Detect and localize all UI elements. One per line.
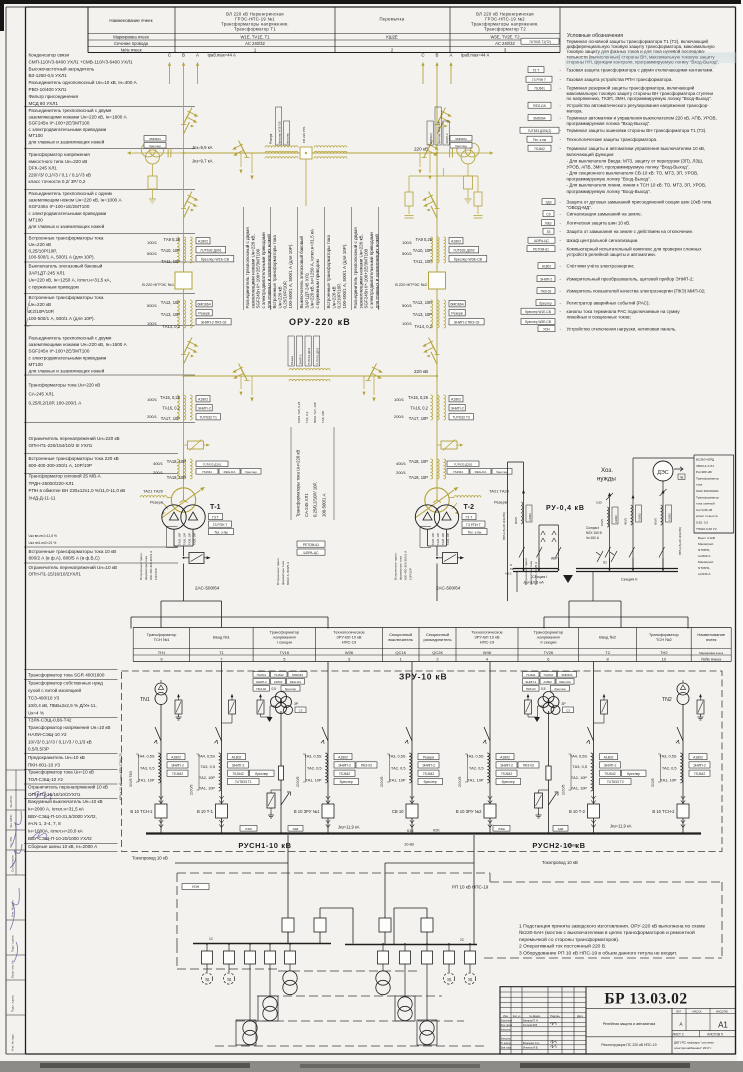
svg-text:Резерв: Резерв <box>494 500 507 505</box>
svg-text:TN2: TN2 <box>662 697 672 703</box>
svg-text:Тех. з-пы: Тех. з-пы <box>533 138 547 142</box>
svg-text:6MD664: 6MD664 <box>533 116 545 120</box>
svg-text:Конденсатор связи: Конденсатор связи <box>29 53 70 58</box>
svg-text:МТ100: МТ100 <box>29 217 44 222</box>
svg-text:устройств релейной защиты и ав: устройств релейной защиты и автоматики. <box>567 251 656 257</box>
svg-text:ТА10, 10Р: ТА10, 10Р <box>161 248 180 253</box>
svg-text:ЗД: ЗД <box>205 978 210 982</box>
svg-text:УРОВ, АПВ, ЗМН, программируему: УРОВ, АПВ, ЗМН, программируемую логику "… <box>567 164 690 169</box>
svg-text:№№ ячеек: №№ ячеек <box>120 48 141 53</box>
svg-text:800/2 А (в ф.А), 800/5 А (в ф.: 800/2 А (в ф.А), 800/5 А (в ф.В,С) <box>29 556 101 561</box>
svg-text:А1802: А1802 <box>338 755 348 759</box>
svg-text:бреслер W1Е-СВ: бреслер W1Е-СВ <box>278 121 282 144</box>
svg-text:В 220 НГРЭС №2: В 220 НГРЭС №2 <box>395 282 427 287</box>
svg-text:ЭНИП-2: ЭНИП-2 <box>198 406 211 410</box>
svg-text:SGF245n II*-100+2Е/3МТ100: SGF245n II*-100+2Е/3МТ100 <box>29 349 90 354</box>
svg-text:ЭНИП-2: ЭНИП-2 <box>445 133 449 144</box>
svg-text:SGF245n II*-100+1Е/2МТ100: SGF245n II*-100+1Е/2МТ100 <box>29 204 90 209</box>
svg-text:Uн=220 кВ, Iн=1250 А, Iоткл.н=: Uн=220 кВ, Iн=1250 А, Iоткл.н=31,5 кА, <box>29 278 111 283</box>
svg-text:заземляющими ножами Uн=220 к: заземляющими ножами Uн=220 кВ, Iн=1600 А <box>29 342 128 347</box>
svg-text:В 220 НГРЭС №1: В 220 НГРЭС №1 <box>142 282 174 287</box>
svg-text:Защита от замыкания на земле с: Защита от замыкания на земле с действием… <box>567 228 694 234</box>
svg-text:ТА12, 10Р: ТА12, 10Р <box>161 300 180 305</box>
svg-text:Релейная защита и автоматика: Релейная защита и автоматика <box>603 1022 656 1026</box>
svg-text:Маркировка ячеек: Маркировка ячеек <box>113 35 149 40</box>
svg-text:2000/5: 2000/5 <box>380 777 384 787</box>
svg-text:Сечение провода: Сечение провода <box>114 41 149 46</box>
svg-text:ГЗ Т: ГЗ Т <box>466 515 473 519</box>
svg-text:Трансформатор Т1: Трансформатор Т1 <box>234 27 276 32</box>
svg-text:ТА18, 10Р: ТА18, 10Р <box>409 459 428 464</box>
svg-text:ТА3, 0,5: ТА3, 0,5 <box>140 766 155 771</box>
svg-text:6MD664: 6MD664 <box>562 673 573 677</box>
svg-text:А1802: А1802 <box>614 515 618 523</box>
svg-text:7SJ642: 7SJ642 <box>501 772 513 776</box>
svg-text:программируемую логику "Вход-В: программируемую логику "Вход-Выход". <box>567 189 651 194</box>
svg-text:яч.N 1, 3-4, 7, 8: яч.N 1, 3-4, 7, 8 <box>28 821 61 826</box>
svg-text:ТА14, 0,2: ТА14, 0,2 <box>414 324 432 329</box>
svg-text:Uн=220 кВ: Uн=220 кВ <box>277 286 282 308</box>
svg-text:емкостного типа Uн=220 кВ: емкостного типа Uн=220 кВ <box>29 159 88 164</box>
svg-text:ТА1, 10Р: ТА1, 10Р <box>389 778 405 783</box>
svg-text:Секция II: Секция II <box>621 577 637 582</box>
svg-text:1С: 1С <box>209 937 214 941</box>
svg-text:ТА2, 10Р: ТА2, 10Р <box>199 775 215 780</box>
svg-text:СЗ: СЗ <box>546 212 550 216</box>
svg-text:А1802: А1802 <box>451 397 461 401</box>
svg-text:ТА21 ТА20: ТА21 ТА20 <box>143 489 164 494</box>
svg-text:Т-2: Т-2 <box>464 504 475 511</box>
svg-text:ЭНИП-2: ЭНИП-2 <box>451 406 464 410</box>
svg-text:220 кВ: 220 кВ <box>414 369 428 374</box>
svg-text:7UT633 Т1: 7UT633 Т1 <box>199 415 217 419</box>
svg-text:форматоры тока: форматоры тока <box>399 556 403 580</box>
svg-text:Т-1: Т-1 <box>210 504 221 511</box>
svg-text:А1802: А1802 <box>542 264 551 268</box>
svg-text:Базаров П.Н.: Базаров П.Н. <box>523 1019 539 1022</box>
svg-text:ОПН-П1-220/154/10/2 III УХЛ1: ОПН-П1-220/154/10/2 III УХЛ1 <box>29 443 93 448</box>
svg-text:бреслер W3Е-СВ: бреслер W3Е-СВ <box>437 121 441 144</box>
svg-text:Вакуумный выключатель Uн=10 кВ: Вакуумный выключатель Uн=10 кВ <box>28 798 103 804</box>
svg-text:Защита от дуговых замыканий пр: Защита от дуговых замыканий присоединени… <box>567 199 712 205</box>
svg-text:400/1: 400/1 <box>153 461 164 466</box>
svg-text:Резерв: Резерв <box>198 311 210 315</box>
svg-text:Выключатель элегазовый баковый: Выключатель элегазовый баковый <box>29 263 103 269</box>
svg-text:300/5 75/5: 300/5 75/5 <box>129 771 133 787</box>
svg-text:ЛЗШ: ЛЗШ <box>545 221 552 225</box>
svg-text:класс точности: класс точности <box>696 514 718 518</box>
svg-text:РЕТОМ-61: РЕТОМ-61 <box>303 543 320 547</box>
svg-text:7UT633 Д301: 7UT633 Д301 <box>203 462 222 466</box>
svg-text:7SJ642: 7SJ642 <box>274 673 284 677</box>
svg-text:Трансформаторы тока Uн=220 кВ: Трансформаторы тока Uн=220 кВ <box>296 450 301 517</box>
svg-text:бреслер: бреслер <box>340 780 353 784</box>
svg-text:Uн=220 кВ: Uн=220 кВ <box>29 242 52 247</box>
svg-text:Трансформатор: Трансформатор <box>696 476 719 480</box>
svg-text:ВВУ-СЭЩ-П-10-31,5/2000 УХЛ2,: ВВУ-СЭЩ-П-10-31,5/2000 УХЛ2, <box>28 814 97 819</box>
svg-text:НПС-19: НПС-19 <box>342 640 357 645</box>
svg-text:ТА4, 0,5S: ТА4, 0,5S <box>570 754 588 759</box>
svg-text:Рн=280 кВт: Рн=280 кВт <box>696 470 713 474</box>
svg-text:ПКН-001-10 У3: ПКН-001-10 У3 <box>28 762 60 767</box>
svg-text:REG-DA: REG-DA <box>559 680 570 684</box>
svg-text:ВЗ-1250-0,5 УХЛ1: ВЗ-1250-0,5 УХЛ1 <box>29 73 68 78</box>
svg-text:10: 10 <box>662 657 667 662</box>
svg-text:ЛЗШ: ЛЗШ <box>245 827 252 831</box>
svg-text:500/1: 500/1 <box>147 251 158 256</box>
svg-text:ТСН №1: ТСН №1 <box>154 637 171 642</box>
svg-text:ГЗ Т: ГЗ Т <box>533 68 539 72</box>
svg-text:ЗЗ: ЗЗ <box>547 230 551 234</box>
svg-text:В 10 Т-1: В 10 Т-1 <box>197 809 214 814</box>
svg-text:№220-5АН (мостик с выключателя: №220-5АН (мостик с выключателями в цепях… <box>519 929 695 936</box>
svg-text:0,5: 0,5 <box>272 687 277 691</box>
svg-text:Сборные шины 10 кВ, Iн=2000 А: Сборные шины 10 кВ, Iн=2000 А <box>28 844 98 849</box>
svg-text:СВ 220 РП1: СВ 220 РП1 <box>302 126 306 143</box>
svg-text:бреслер: бреслер <box>554 687 566 691</box>
svg-text:Рук. пром.: Рук. пром. <box>501 1024 513 1027</box>
svg-text:ЗД: ЗД <box>468 978 473 982</box>
svg-text:ЭНИП-2: ЭНИП-2 <box>525 680 536 684</box>
svg-text:10/0,4 кВ, ПБВ±2х2,5 % Д/Ун-11: 10/0,4 кВ, ПБВ±2х2,5 % Д/Ун-11, <box>28 703 97 708</box>
svg-text:В 10 ТСН-2: В 10 ТСН-2 <box>652 809 675 814</box>
svg-text:350/0,4-Х.Л1: 350/0,4-Х.Л1 <box>696 464 714 468</box>
svg-text:Uн=220 кВ, Iн=1250 А, Iоткл.н=: Uн=220 кВ, Iн=1250 А, Iоткл.н=31,5 кА <box>310 229 315 308</box>
svg-text:А1802: А1802 <box>500 755 510 759</box>
svg-text:7SJ641: 7SJ641 <box>526 673 536 677</box>
svg-text:СА-245 ХЛ1: СА-245 ХЛ1 <box>304 493 309 517</box>
svg-text:1 Подстанция принята заводског: 1 Подстанция принята заводского изготовл… <box>519 924 706 930</box>
svg-text:А1802: А1802 <box>171 755 181 759</box>
svg-text:Разъединитель трехполюсный с д: Разъединитель трехполюсный с двумя <box>29 107 112 113</box>
svg-text:форматоры тока: форматоры тока <box>281 561 285 585</box>
svg-text:№ Докум.: № Докум. <box>529 1015 541 1018</box>
svg-text:А1802: А1802 <box>637 513 641 521</box>
svg-text:ЭНИП-2: ЭНИП-2 <box>256 680 267 684</box>
svg-text:Газовая защита устройства РПН: Газовая защита устройства РПН трансформа… <box>567 76 673 82</box>
svg-text:500/1 ТА7, 10Р: 500/1 ТА7, 10Р <box>313 402 317 423</box>
svg-text:Токопровод 10 кВ: Токопровод 10 кВ <box>542 860 578 865</box>
svg-text:включающий функции:: включающий функции: <box>567 151 615 157</box>
svg-text:ТА1, 10Р: ТА1, 10Р <box>571 786 587 791</box>
svg-text:7UT633 Д302: 7UT633 Д302 <box>454 462 473 466</box>
svg-text:ПКЗ-02: ПКЗ-02 <box>526 687 536 691</box>
svg-text:бреслер: бреслер <box>424 780 437 784</box>
svg-text:Разъединитель трехполюсный с о: Разъединитель трехполюсный с одним <box>29 190 112 196</box>
svg-text:Высокочастотный заградитель: Высокочастотный заградитель <box>29 65 95 71</box>
svg-text:7SJ641: 7SJ641 <box>453 470 464 474</box>
svg-text:W3Е, ТV2Е, Т2: W3Е, ТV2Е, Т2 <box>490 35 520 40</box>
svg-text:Jкз=11,9 кА: Jкз=11,9 кА <box>338 825 360 830</box>
svg-text:Masterpact: Masterpact <box>698 542 713 546</box>
svg-text:К1К: К1К <box>407 829 414 833</box>
svg-text:100/5: 100/5 <box>600 519 604 526</box>
svg-text:500/1: 500/1 <box>402 251 413 256</box>
svg-text:заземляющими ножами Uн=220 кВ: заземляющими ножами Uн=220 кВ, <box>358 234 363 308</box>
svg-text:Нач. ОМНС: Нач. ОМНС <box>10 814 13 828</box>
svg-text:Реконструкция ПС 220 кВ НПС-19: Реконструкция ПС 220 кВ НПС-19 <box>601 1043 656 1047</box>
svg-text:ОПН-П1-15/18/10/2УХЛ1: ОПН-П1-15/18/10/2УХЛ1 <box>28 792 81 797</box>
svg-text:СА-245 ХЛ1: СА-245 ХЛ1 <box>29 392 55 397</box>
svg-text:ВВГнг(А)-ХЛ-3(4х150): ВВГнг(А)-ХЛ-3(4х150) <box>678 527 682 555</box>
svg-text:0,5: 0,5 <box>541 687 546 691</box>
svg-text:A: A <box>450 53 453 58</box>
svg-text:А1802: А1802 <box>528 513 532 521</box>
svg-text:A: A <box>196 53 199 58</box>
svg-text:600-400-300-200/1 А, 10Р/10: 600-400-300-200/1 А, 10Р/10Р <box>29 463 93 468</box>
svg-text:ТА2, 0,5: ТА2, 0,5 <box>391 766 406 771</box>
svg-text:ЭНИП-2: ЭНИП-2 <box>422 764 435 768</box>
svg-text:ТА2, 0,5: ТА2, 0,5 <box>662 766 677 771</box>
svg-text:ТА17, 10Р: ТА17, 10Р <box>161 416 180 421</box>
svg-text:А1802: А1802 <box>543 680 552 684</box>
svg-text:заземляющим ножом Uн=220 кВ,: заземляющим ножом Uн=220 кВ, Iн=1000 А <box>29 198 123 203</box>
svg-text:Наименование ячеек: Наименование ячеек <box>109 18 152 23</box>
svg-text:для главных и заземляющих ноже: для главных и заземляющих ножей <box>29 223 105 229</box>
svg-text:7SJ641: 7SJ641 <box>256 673 266 677</box>
svg-text:Встроенные трансформаторы тока: Встроенные трансформаторы тока <box>29 295 104 300</box>
svg-text:ПКЗ-02: ПКЗ-02 <box>361 764 372 768</box>
svg-text:2000/5: 2000/5 <box>562 785 566 795</box>
svg-text:ТА28, 10Р: ТА28, 10Р <box>441 533 445 545</box>
svg-text:200/1: 200/1 <box>394 414 405 419</box>
svg-text:ГЗ РПН Т: ГЗ РПН Т <box>532 78 546 82</box>
svg-text:2000/5: 2000/5 <box>458 777 462 787</box>
svg-text:0,5/0,5/3Р: 0,5/0,5/3Р <box>28 747 49 752</box>
svg-text:Подп. и дата: Подп. и дата <box>11 935 15 952</box>
svg-text:ТА3, 0,5S: ТА3, 0,5S <box>659 754 677 759</box>
svg-text:200/1: 200/1 <box>153 470 164 475</box>
svg-text:А1802: А1802 <box>451 239 461 243</box>
svg-text:100/1: 100/1 <box>147 397 158 402</box>
svg-text:ТА9 0,25: ТА9 0,25 <box>164 237 181 242</box>
svg-text:Секция I: Секция I <box>532 574 547 579</box>
svg-text:7SJ642: 7SJ642 <box>423 772 435 776</box>
svg-text:Uн=220 кВ: Uн=220 кВ <box>29 302 52 307</box>
svg-text:NТ08Н1,: NТ08Н1, <box>698 548 711 552</box>
svg-text:ЗАР1ДТ-245 ХЛ1: ЗАР1ДТ-245 ХЛ1 <box>29 271 66 276</box>
svg-text:ТА2, 0,5: ТА2, 0,5 <box>307 766 322 771</box>
svg-text:заземляющими ножами Uн=220 кВ: заземляющими ножами Uн=220 кВ, <box>250 234 255 308</box>
svg-text:ЛИТ: ЛИТ <box>676 1010 681 1013</box>
svg-text:10Р/10Р: 10Р/10Р <box>409 568 413 580</box>
svg-text:220/√3/ 0,1/√3 / 0,1 / 0,1/√3: 220/√3/ 0,1/√3 / 0,1 / 0,1/√3 кВ <box>29 172 91 177</box>
svg-text:Устройство отключения нагрузки: Устройство отключения нагрузки, нетипова… <box>567 326 677 332</box>
svg-text:ЗДЗ: ЗДЗ <box>558 827 564 831</box>
svg-text:100-500/1 А, 500/1 А (для 10Р): 100-500/1 А, 500/1 А (для 10Р). <box>342 244 347 309</box>
svg-text:БСЗМ НОРД: БСЗМ НОРД <box>696 458 715 462</box>
svg-text:Заполнил: Заполнил <box>501 1019 513 1022</box>
svg-text:А1802: А1802 <box>274 680 283 684</box>
svg-text:Compact: Compact <box>586 526 599 530</box>
svg-text:ЗДЗ: ЗДЗ <box>545 200 551 204</box>
svg-text:Подп. и дата: Подп. и дата <box>11 995 15 1012</box>
svg-text:перемычкой со стороны трансфор: перемычкой со стороны трансформаторов). <box>519 936 619 943</box>
svg-text:ЭНИП-2: ЭНИП-2 <box>693 764 706 768</box>
svg-text:Трансформаторы тока Uн=220 кВ: Трансформаторы тока Uн=220 кВ <box>29 383 101 388</box>
svg-text:ТV2К: ТV2К <box>544 650 554 655</box>
svg-text:для главных и заземляющих ноже: для главных и заземляющих ножей <box>29 139 105 145</box>
svg-text:бреслер: бреслер <box>286 133 290 144</box>
svg-text:ТА28, 10Р: ТА28, 10Р <box>188 533 192 545</box>
svg-text:Кол.уч: Кол.уч <box>513 1015 521 1018</box>
svg-text:ТСЗ-400/10 У3: ТСЗ-400/10 У3 <box>28 696 60 701</box>
svg-text:ПКЗ-02: ПКЗ-02 <box>523 764 534 768</box>
svg-text:Iн=1000А, Iоткл.н=20,0 кА: Iн=1000А, Iоткл.н=20,0 кА <box>28 829 84 834</box>
svg-text:К2К: К2К <box>433 829 440 833</box>
svg-text:Дата: Дата <box>577 1015 583 1018</box>
svg-text:100-500/1 А: 100-500/1 А <box>321 493 326 517</box>
svg-text:УОН: УОН <box>192 885 200 889</box>
svg-text:10 кВ: 10 кВ <box>404 842 414 847</box>
svg-text:Компьютерный испытательный ком: Компьютерный испытательный комплекс для … <box>567 246 703 252</box>
svg-text:с электродвигательными привода: с электродвигательными приводами <box>29 127 107 132</box>
svg-text:Ввод №1: Ввод №1 <box>213 635 231 640</box>
svg-text:Uкз нн1-нн2=21 %: Uкз нн1-нн2=21 % <box>29 541 57 545</box>
svg-text:бреслер: бреслер <box>539 301 552 305</box>
svg-text:ДЭС: ДЭС <box>657 470 669 476</box>
svg-text:B: B <box>182 53 185 58</box>
svg-text:7UT633 Д302: 7UT633 Д302 <box>453 248 475 252</box>
svg-text:ЛЗШ: ЛЗШ <box>498 827 505 831</box>
svg-text:Измерительный преобразователь,: Измерительный преобразователь, щитовой п… <box>567 276 694 282</box>
svg-text:МАСШТАБ: МАСШТАБ <box>716 1010 728 1013</box>
svg-text:400/1: 400/1 <box>396 461 407 466</box>
svg-text:ТА9 0,25: ТА9 0,25 <box>416 237 433 242</box>
svg-text:Терминал защиты и автоматики у: Терминал защиты и автоматики управления … <box>567 146 706 151</box>
svg-text:Т1: Т1 <box>219 650 224 655</box>
svg-text:электроснабжения” 2017 г.: электроснабжения” 2017 г. <box>674 1046 713 1050</box>
svg-text:0,55: 0,55 <box>596 501 602 505</box>
svg-text:Трансформатор напряжения Uн=10: Трансформатор напряжения Uн=10 кВ <box>28 725 111 730</box>
svg-text:А1802: А1802 <box>198 397 208 401</box>
svg-text:Нач. ПТО: Нач. ПТО <box>10 837 13 848</box>
svg-text:МТ100: МТ100 <box>29 362 44 367</box>
svg-text:С3: С3 <box>299 708 303 712</box>
svg-text:Условные обозначения: Условные обозначения <box>567 33 623 39</box>
svg-text:TN1: TN1 <box>140 697 150 703</box>
svg-text:бреслер: бреслер <box>149 144 161 148</box>
svg-text:PE: PE <box>510 567 514 571</box>
svg-text:ТV1К: ТV1К <box>280 650 290 655</box>
svg-text:7SJ641: 7SJ641 <box>202 470 213 474</box>
svg-text:разъединитель: разъединитель <box>423 637 451 642</box>
svg-text:100/1: 100/1 <box>394 397 405 402</box>
svg-text:линейных и секционных токов;: линейных и секционных токов; <box>567 313 631 319</box>
svg-text:АС 240/32: АС 240/32 <box>245 41 265 46</box>
svg-text:2АС-500/64: 2АС-500/64 <box>436 586 461 591</box>
svg-text:W4К: W4К <box>483 650 492 655</box>
svg-text:Встроенные трансформаторы тока: Встроенные трансформаторы тока <box>326 235 331 309</box>
svg-text:Uкз вн-нн1=11,5 %: Uкз вн-нн1=11,5 % <box>29 534 57 538</box>
svg-text:- Для секционного выключателя: - Для секционного выключателя СВ-10 кВ: … <box>567 171 699 176</box>
svg-text:0,55, 0,5: 0,55, 0,5 <box>696 521 708 525</box>
svg-text:Перемычка: Перемычка <box>379 17 404 22</box>
svg-text:для главных и заземляющих ноже: для главных и заземляющих ножей <box>29 368 105 374</box>
svg-text:А1802: А1802 <box>693 755 703 759</box>
svg-text:- Для выключателя Ввода: МТЗ,: - Для выключателя Ввода: МТЗ, защиту от … <box>567 158 704 163</box>
svg-text:Iраб.max=44 А: Iраб.max=44 А <box>208 53 237 58</box>
svg-text:ТА3, 0,5S: ТА3, 0,5S <box>466 754 484 759</box>
svg-text:SGF245n II*-100+2Е/3МТ100: SGF245n II*-100+2Е/3МТ100 <box>364 248 369 308</box>
svg-text:Iн=630 А: Iн=630 А <box>698 572 711 576</box>
svg-text:6MD664: 6MD664 <box>450 302 463 306</box>
svg-text:Ограничитель перенапряжений Uн: Ограничитель перенапряжений Uн=220 кВ <box>29 435 120 441</box>
svg-text:Разъединитель трехполюсный с д: Разъединитель трехполюсный с двумя <box>244 227 250 309</box>
svg-text:0,2/10Р/10Р,: 0,2/10Р/10Р, <box>29 309 55 314</box>
svg-text:QС1К: QС1К <box>395 650 406 655</box>
svg-text:2С: 2С <box>460 938 465 942</box>
svg-text:100-500/1 А, 500/1 А (для 10Р): 100-500/1 А, 500/1 А (для 10Р). <box>29 316 95 321</box>
svg-text:БР 13.03.02: БР 13.03.02 <box>604 991 687 1008</box>
svg-text:Masterpact: Masterpact <box>698 560 713 564</box>
svg-text:DFK-245 ХЛ1: DFK-245 ХЛ1 <box>29 166 58 171</box>
svg-text:400/5: 400/5 <box>624 518 628 525</box>
svg-text:ШЗРА-ЦС: ШЗРА-ЦС <box>303 551 319 555</box>
svg-text:СВ 10: СВ 10 <box>392 809 404 814</box>
svg-text:B: B <box>436 53 439 58</box>
svg-text:Uн=220 кВ: Uн=220 кВ <box>331 286 336 308</box>
svg-text:МСД 80 УХЛ1: МСД 80 УХЛ1 <box>29 101 59 106</box>
svg-text:C: C <box>168 53 171 58</box>
svg-text:SGF245n II*-100+2Е/3МТ100: SGF245n II*-100+2Е/3МТ100 <box>29 121 90 126</box>
svg-text:ШЗРА-ЦС: ШЗРА-ЦС <box>534 239 549 243</box>
svg-text:7UT633 Т2: 7UT633 Т2 <box>452 415 470 419</box>
svg-text:АВР: АВР <box>551 557 559 561</box>
svg-text:N: N <box>510 563 512 567</box>
svg-text:600/5: 600/5 <box>654 518 658 525</box>
svg-text:Встроенные трансформаторы тока: Встроенные трансформаторы тока <box>29 236 104 241</box>
svg-text:А1802: А1802 <box>604 755 614 759</box>
svg-text:7SJ642: 7SJ642 <box>172 772 184 776</box>
svg-text:ПКЗ-02: ПКЗ-02 <box>256 687 266 691</box>
svg-text:бреслер: бреслер <box>502 780 515 784</box>
svg-text:Ограничитель перенапряжений 10: Ограничитель перенапряжений 10 кВ <box>28 784 108 790</box>
svg-text:ЗДЗ: ЗДЗ <box>293 827 299 831</box>
svg-text:ДВГУПС кафедра “системы: ДВГУПС кафедра “системы <box>674 1041 715 1045</box>
svg-text:ТРДН-25000/220-ХЛ1: ТРДН-25000/220-ХЛ1 <box>29 481 75 486</box>
svg-text:ЭНИП-2: ЭНИП-2 <box>338 764 351 768</box>
svg-text:ЭНИП-2: ЭНИП-2 <box>540 277 552 281</box>
svg-text:Шкаф центральной сигнализации.: Шкаф центральной сигнализации. <box>567 237 639 243</box>
svg-text:Счётчики учёта электроэнергии;: Счётчики учёта электроэнергии; <box>567 264 635 269</box>
svg-text:ТА13, 10Р: ТА13, 10Р <box>161 312 180 317</box>
svg-text:2000/5: 2000/5 <box>190 785 194 795</box>
svg-text:бреслер: бреслер <box>627 772 640 776</box>
svg-text:ТА29, 10Р: ТА29, 10Р <box>446 533 450 545</box>
svg-text:РВО-10/400 УХЛ1: РВО-10/400 УХЛ1 <box>29 87 67 92</box>
svg-text:ЭНИП-2 ПКЗ-02: ЭНИП-2 ПКЗ-02 <box>201 320 227 324</box>
svg-text:100/1 ТА5, 0,25: 100/1 ТА5, 0,25 <box>297 401 301 423</box>
svg-text:ТА26, 10Р: ТА26, 10Р <box>436 533 440 545</box>
svg-text:тока шинный: тока шинный <box>696 502 715 506</box>
svg-text:Jкз=10,6 кА: Jкз=10,6 кА <box>523 580 544 585</box>
svg-text:Трансформатор напряжения: Трансформатор напряжения <box>29 152 91 157</box>
svg-text:ТА1, 10Р: ТА1, 10Р <box>660 778 676 783</box>
svg-text:6MD664: 6MD664 <box>197 302 210 306</box>
svg-text:Хоз.: Хоз. <box>601 467 613 474</box>
svg-text:Трансформатор силовой 25 МВ·А: Трансформатор силовой 25 МВ·А <box>29 473 102 479</box>
svg-text:I секции: I секции <box>277 640 292 645</box>
svg-text:7UT633 Т2: 7UT633 Т2 <box>607 780 624 784</box>
svg-text:ТНШЛ-0,66 У2: ТНШЛ-0,66 У2 <box>696 527 717 531</box>
svg-text:600-400-300-200/1 А: 600-400-300-200/1 А <box>149 550 153 580</box>
svg-text:Подпись: Подпись <box>550 1015 561 1018</box>
svg-text:7SJ642: 7SJ642 <box>339 772 351 776</box>
svg-text:ГЗ РПН Т: ГЗ РПН Т <box>213 523 228 527</box>
svg-text:W3К: W3К <box>345 650 354 655</box>
svg-text:КШ2Е: КШ2Е <box>386 35 398 40</box>
